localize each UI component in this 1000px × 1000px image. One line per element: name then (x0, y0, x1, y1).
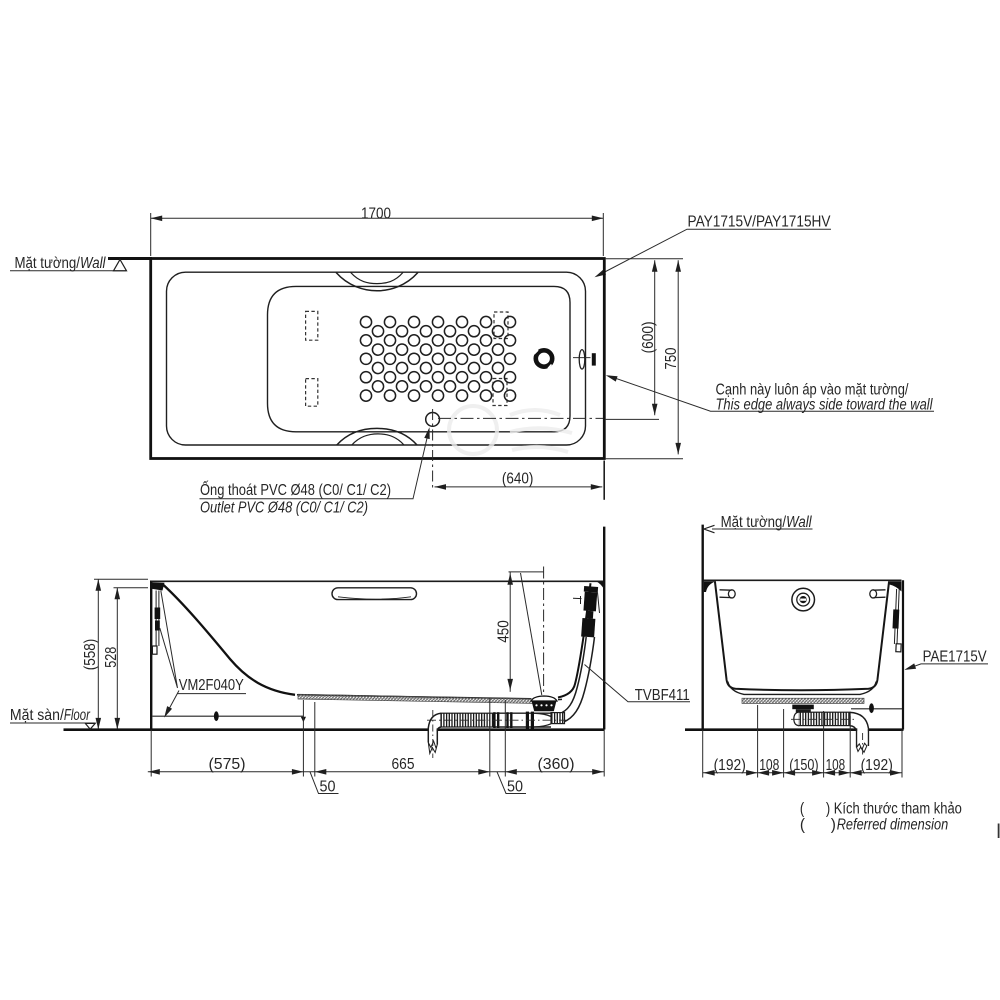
svg-text:50: 50 (320, 779, 336, 796)
svg-text:(600): (600) (640, 321, 657, 353)
svg-text:(558): (558) (82, 639, 99, 671)
svg-text:PAE1715V: PAE1715V (923, 649, 988, 666)
svg-text:Mặt tường/: Mặt tường/ (721, 514, 787, 531)
svg-text:Ống thoát PVC Ø48 (C0/ C1/ C2): Ống thoát PVC Ø48 (C0/ C1/ C2) (200, 481, 391, 499)
svg-text:( ) Kích thước tham khảo: ( ) Kích thước tham khảo (800, 801, 962, 818)
svg-text:(640): (640) (502, 470, 533, 487)
svg-text:50: 50 (507, 779, 523, 796)
svg-text:Floor: Floor (64, 707, 91, 724)
svg-text:Mặt tường/: Mặt tường/ (15, 255, 81, 272)
svg-text:450: 450 (496, 620, 513, 643)
svg-text:1700: 1700 (361, 206, 391, 223)
svg-text:( ): ( ) (800, 817, 836, 834)
svg-text:Outlet PVC Ø48 (C0/ C1/ C2): Outlet PVC Ø48 (C0/ C1/ C2) (200, 499, 368, 516)
svg-text:Wall: Wall (80, 255, 106, 272)
svg-text:(192): (192) (714, 757, 746, 774)
svg-text:(360): (360) (538, 756, 575, 773)
svg-text:TVBF411: TVBF411 (635, 687, 690, 704)
svg-text:750: 750 (663, 347, 680, 369)
svg-text:528: 528 (103, 647, 120, 668)
svg-text:(150): (150) (789, 757, 818, 774)
svg-text:VM2F040Y: VM2F040Y (179, 677, 244, 694)
svg-text:This edge always side toward t: This edge always side toward the wall (716, 397, 933, 414)
svg-text:108: 108 (759, 757, 779, 774)
svg-text:665: 665 (392, 756, 415, 773)
svg-text:PAY1715V/PAY1715HV: PAY1715V/PAY1715HV (688, 214, 832, 231)
svg-text:Wall: Wall (786, 514, 812, 531)
svg-text:Mặt sàn/: Mặt sàn/ (10, 707, 65, 724)
svg-text:108: 108 (826, 757, 846, 774)
svg-text:(192): (192) (861, 757, 893, 774)
svg-text:(575): (575) (209, 756, 246, 773)
svg-text:Referred dimension: Referred dimension (837, 817, 949, 834)
